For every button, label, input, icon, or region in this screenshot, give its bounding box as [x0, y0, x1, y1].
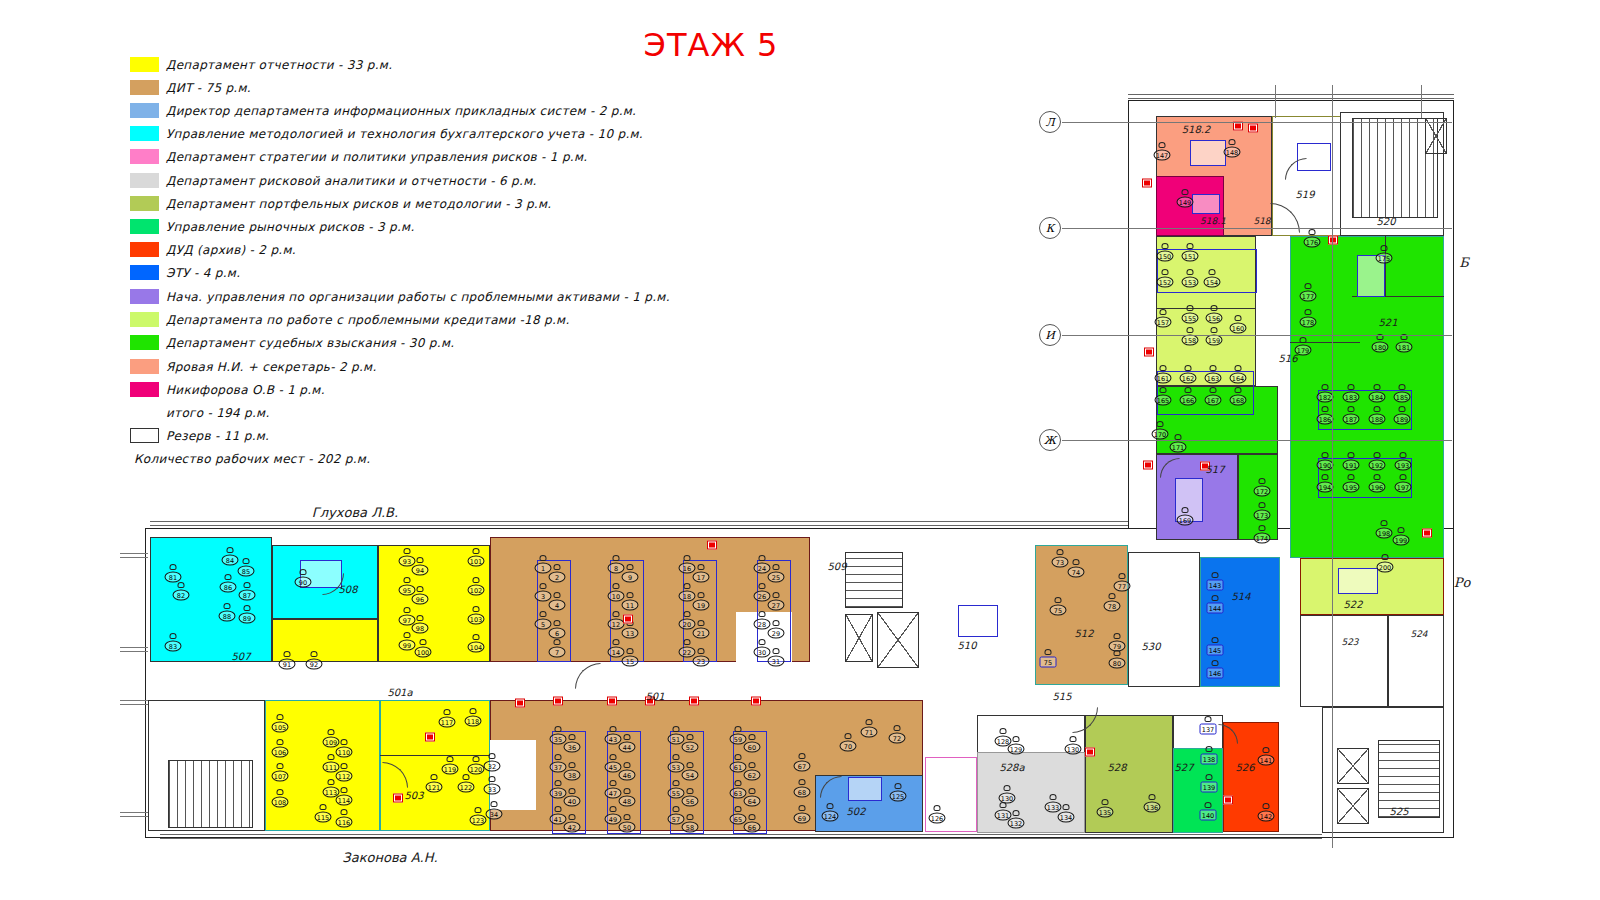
chair-icon — [687, 814, 694, 820]
chair-icon — [687, 734, 694, 740]
meeting-table-8 — [958, 605, 998, 637]
chair-icon — [555, 726, 562, 732]
desk-44: 44 — [619, 742, 636, 753]
chair-icon — [845, 733, 852, 739]
desk-28: 28 — [754, 619, 771, 630]
desk-190: 190 — [1317, 460, 1334, 471]
desk-10: 10 — [608, 591, 625, 602]
desk-61: 61 — [730, 762, 747, 773]
chair-icon — [735, 754, 742, 760]
desk-96: 96 — [412, 594, 429, 605]
desk-74: 74 — [1068, 567, 1085, 578]
chair-icon — [170, 564, 177, 570]
desk-133: 133 — [1045, 802, 1062, 813]
desk-105: 105 — [272, 722, 289, 733]
desk-59: 59 — [730, 734, 747, 745]
chair-icon — [866, 719, 873, 725]
chair-icon — [673, 726, 680, 732]
chair-icon — [1109, 593, 1116, 599]
desk-110: 110 — [336, 747, 353, 758]
fire-extinguisher-icon — [1328, 236, 1338, 245]
chair-icon — [1211, 305, 1218, 311]
grid-line-v-1 — [1275, 85, 1276, 118]
chair-icon — [417, 615, 424, 621]
window-strip-0 — [160, 834, 1322, 839]
chair-icon — [1000, 728, 1007, 734]
chair-icon — [827, 803, 834, 809]
chair-icon — [554, 564, 561, 570]
chair-icon — [1185, 365, 1192, 371]
chair-icon — [1398, 527, 1405, 533]
desk-142: 142 — [1258, 811, 1275, 822]
desk-147: 147 — [1154, 150, 1171, 161]
chair-icon — [341, 763, 348, 769]
chair-icon — [613, 639, 620, 645]
desk-39: 39 — [550, 788, 567, 799]
desk-71: 71 — [861, 727, 878, 738]
desk-94: 94 — [412, 565, 429, 576]
chair-icon — [1212, 637, 1219, 643]
desk-37: 37 — [550, 762, 567, 773]
chair-icon — [1157, 421, 1164, 427]
chair-icon — [540, 611, 547, 617]
floor-plan: 1471481491501511521531541571551561581591… — [0, 0, 1600, 900]
chair-icon — [1263, 803, 1270, 809]
plan-label-508: 508 — [338, 584, 357, 595]
desk-88: 88 — [219, 611, 236, 622]
plan-label--: Глухова Л.В. — [312, 505, 398, 520]
plan-label-507: 507 — [231, 651, 250, 662]
chair-icon — [569, 734, 576, 740]
chair-icon — [170, 633, 177, 639]
chair-icon — [417, 557, 424, 563]
plan-label-501: 501 — [645, 691, 664, 702]
chair-icon — [773, 648, 780, 654]
chair-icon — [894, 725, 901, 731]
desk-199: 199 — [1393, 535, 1410, 546]
axis-tick-1b — [120, 651, 148, 652]
desk-16: 16 — [679, 563, 696, 574]
desk-62: 62 — [744, 770, 761, 781]
chair-icon — [463, 774, 470, 780]
chair-icon — [320, 804, 327, 810]
desk-68: 68 — [794, 787, 811, 798]
desk-12: 12 — [608, 619, 625, 630]
desk-4: 4 — [549, 600, 566, 611]
chair-icon — [1210, 365, 1217, 371]
fire-extinguisher-icon — [393, 794, 403, 803]
desk-90: 90 — [295, 577, 312, 588]
chair-icon — [749, 788, 756, 794]
plan-label-528: 528 — [1107, 762, 1126, 773]
room-523 — [1300, 615, 1388, 707]
chair-icon — [1263, 747, 1270, 753]
desk-165: 165 — [1155, 395, 1172, 406]
desk-41: 41 — [550, 814, 567, 825]
meeting-table-7 — [1338, 568, 1378, 594]
chair-icon — [613, 583, 620, 589]
chair-icon — [1305, 283, 1312, 289]
chair-icon — [613, 555, 620, 561]
chair-icon — [277, 714, 284, 720]
chair-icon — [749, 734, 756, 740]
chair-icon — [624, 788, 631, 794]
chair-icon — [1205, 716, 1212, 722]
grid-line-v-2 — [1421, 85, 1422, 118]
plan-label-528-: 528а — [999, 762, 1024, 773]
chair-icon — [1305, 309, 1312, 315]
chair-icon — [569, 788, 576, 794]
desk-85: 85 — [238, 566, 255, 577]
desk-171: 171 — [1170, 442, 1187, 453]
chair-icon — [1400, 474, 1407, 480]
chair-icon — [473, 548, 480, 554]
desk-152: 152 — [1157, 277, 1174, 288]
desk-143: 143 — [1207, 580, 1224, 591]
chair-icon — [1057, 549, 1064, 555]
chair-icon — [1205, 802, 1212, 808]
chair-icon — [698, 592, 705, 598]
chair-icon — [277, 789, 284, 795]
chair-icon — [759, 555, 766, 561]
chair-icon — [684, 639, 691, 645]
chair-icon — [473, 577, 480, 583]
desk-125: 125 — [890, 791, 907, 802]
desk-29: 29 — [768, 628, 785, 639]
chair-icon — [540, 555, 547, 561]
chair-icon — [799, 779, 806, 785]
desk-43: 43 — [605, 734, 622, 745]
desk-92: 92 — [306, 659, 323, 670]
desk-155: 155 — [1182, 313, 1199, 324]
plan-label-510: 510 — [957, 640, 976, 651]
chair-icon — [610, 726, 617, 732]
desk-134: 134 — [1058, 812, 1075, 823]
desk-151: 151 — [1182, 251, 1199, 262]
axis-tick-2b — [120, 704, 148, 705]
desk-140: 140 — [1200, 810, 1217, 821]
axis-tick-3b — [120, 816, 148, 817]
desk-78: 78 — [1104, 601, 1121, 612]
chair-icon — [1160, 309, 1167, 315]
chair-icon — [1300, 337, 1307, 343]
chair-icon — [1055, 597, 1062, 603]
fire-extinguisher-icon — [515, 699, 525, 708]
desk-164: 164 — [1230, 373, 1247, 384]
chair-icon — [735, 806, 742, 812]
desk-31: 31 — [768, 656, 785, 667]
room-530 — [1128, 552, 1200, 687]
desk-21: 21 — [693, 628, 710, 639]
desk-38: 38 — [564, 770, 581, 781]
chair-icon — [773, 620, 780, 626]
grid-line-h-2 — [1062, 335, 1452, 336]
chair-icon — [555, 780, 562, 786]
chair-icon — [224, 603, 231, 609]
chair-icon — [473, 634, 480, 640]
plan-label-515: 515 — [1052, 691, 1071, 702]
chair-icon — [1322, 406, 1329, 412]
desk-49: 49 — [605, 814, 622, 825]
chair-icon — [1212, 595, 1219, 601]
chair-icon — [627, 592, 634, 598]
chair-icon — [244, 605, 251, 611]
chair-icon — [178, 582, 185, 588]
desk-141: 141 — [1258, 755, 1275, 766]
plan-label-526: 526 — [1235, 762, 1254, 773]
chair-icon — [1206, 746, 1213, 752]
chair-icon — [684, 611, 691, 617]
fire-extinguisher-icon — [689, 697, 699, 706]
desk-123: 123 — [470, 815, 487, 826]
desk-132: 132 — [1008, 818, 1025, 829]
chair-icon — [698, 620, 705, 626]
grid-line-h-1 — [1062, 228, 1452, 229]
desk-119: 119 — [442, 764, 459, 775]
desk-50: 50 — [619, 822, 636, 833]
desk-77: 77 — [1114, 581, 1131, 592]
chair-icon — [431, 774, 438, 780]
desk-192: 192 — [1369, 460, 1386, 471]
chair-icon — [1374, 474, 1381, 480]
chair-icon — [610, 754, 617, 760]
chair-icon — [1212, 572, 1219, 578]
desk-75: 75 — [1050, 605, 1067, 616]
desk-26: 26 — [754, 591, 771, 602]
stairs-1 — [1378, 740, 1440, 818]
axis-tick-0b — [120, 557, 148, 558]
fire-extinguisher-icon — [1248, 124, 1258, 133]
desk-65: 65 — [730, 814, 747, 825]
desk-17: 17 — [693, 572, 710, 583]
desk-135: 135 — [1097, 807, 1114, 818]
desk-121: 121 — [426, 782, 443, 793]
desk-72: 72 — [889, 733, 906, 744]
desk-138: 138 — [1201, 754, 1218, 765]
desk-181: 181 — [1396, 342, 1413, 353]
chair-icon — [444, 709, 451, 715]
plan-label-520: 520 — [1376, 216, 1395, 227]
desk-82: 82 — [173, 590, 190, 601]
fire-extinguisher-icon — [751, 697, 761, 706]
desk-70: 70 — [840, 741, 857, 752]
chair-icon — [1004, 785, 1011, 791]
grid-axis-И: И — [1039, 324, 1061, 346]
desk-196: 196 — [1369, 482, 1386, 493]
desk-116: 116 — [336, 817, 353, 828]
chair-icon — [1235, 387, 1242, 393]
chair-icon — [1162, 243, 1169, 249]
chair-icon — [1235, 315, 1242, 321]
desk-158: 158 — [1182, 335, 1199, 346]
chair-icon — [244, 582, 251, 588]
chair-icon — [328, 754, 335, 760]
desk-198: 198 — [1376, 528, 1393, 539]
desk-24: 24 — [754, 563, 771, 574]
plan-label-522: 522 — [1343, 599, 1362, 610]
room-reserve-zone-2 — [490, 740, 536, 810]
desk-13: 13 — [622, 628, 639, 639]
desk-33: 33 — [484, 784, 501, 795]
stairs-2 — [845, 552, 903, 608]
desk-126: 126 — [929, 813, 946, 824]
desk-15: 15 — [622, 656, 639, 667]
chair-icon — [613, 611, 620, 617]
partition-wall-0 — [1156, 308, 1256, 309]
stairs-3 — [168, 760, 253, 828]
desk-73: 73 — [1052, 557, 1069, 568]
desk-5: 5 — [535, 619, 552, 630]
desk-139: 139 — [1201, 782, 1218, 793]
chair-icon — [1149, 794, 1156, 800]
desk-148: 148 — [1224, 147, 1241, 158]
desk-168: 168 — [1230, 395, 1247, 406]
elevator-1 — [877, 612, 919, 668]
desk-48: 48 — [619, 796, 636, 807]
chair-icon — [328, 729, 335, 735]
chair-icon — [1119, 573, 1126, 579]
chair-icon — [554, 639, 561, 645]
chair-icon — [341, 809, 348, 815]
axis-tick-3 — [120, 812, 148, 813]
chair-icon — [1212, 660, 1219, 666]
axis-tick-1 — [120, 647, 148, 648]
plan-label-527: 527 — [1174, 762, 1193, 773]
desk-193: 193 — [1395, 460, 1412, 471]
meeting-table-5 — [848, 777, 882, 801]
chair-icon — [341, 787, 348, 793]
chair-icon — [277, 739, 284, 745]
desk-163: 163 — [1205, 373, 1222, 384]
chair-icon — [540, 583, 547, 589]
chair-icon — [1160, 365, 1167, 371]
desk-157: 157 — [1155, 317, 1172, 328]
desk-104: 104 — [468, 642, 485, 653]
desk-144: 144 — [1207, 603, 1224, 614]
chair-icon — [1000, 802, 1007, 808]
desk-118: 118 — [465, 716, 482, 727]
desk-93: 93 — [399, 556, 416, 567]
desk-60: 60 — [744, 742, 761, 753]
desk-14: 14 — [608, 647, 625, 658]
fire-extinguisher-icon — [707, 541, 717, 550]
desk-18: 18 — [679, 591, 696, 602]
chair-icon — [627, 564, 634, 570]
desk-47: 47 — [605, 788, 622, 799]
desk-112: 112 — [336, 771, 353, 782]
chair-icon — [447, 756, 454, 762]
chair-icon — [895, 783, 902, 789]
desk-69: 69 — [794, 813, 811, 824]
plan-label-503: 503 — [404, 790, 423, 801]
desk-122: 122 — [458, 782, 475, 793]
desk-186: 186 — [1317, 414, 1334, 425]
chair-icon — [404, 607, 411, 613]
plan-label-501-: 501а — [387, 687, 412, 698]
chair-icon — [673, 754, 680, 760]
chair-icon — [277, 763, 284, 769]
chair-icon — [684, 583, 691, 589]
plan-label-521: 521 — [1378, 317, 1397, 328]
desk-160: 160 — [1230, 323, 1247, 334]
chair-icon — [1187, 305, 1194, 311]
plan-label-530: 530 — [1141, 641, 1160, 652]
elevator-3 — [1337, 788, 1369, 824]
chair-icon — [1187, 243, 1194, 249]
desk-115: 115 — [315, 812, 332, 823]
chair-icon — [1210, 387, 1217, 393]
desk-137: 137 — [1200, 724, 1217, 735]
chair-icon — [243, 558, 250, 564]
chair-icon — [735, 780, 742, 786]
chair-icon — [1013, 810, 1020, 816]
desk-161: 161 — [1155, 373, 1172, 384]
chair-icon — [1259, 502, 1266, 508]
desk-80: 80 — [1109, 658, 1126, 669]
desk-120: 120 — [468, 764, 485, 775]
chair-icon — [1187, 269, 1194, 275]
plan-label-525: 525 — [1389, 806, 1408, 817]
chair-icon — [1348, 474, 1355, 480]
plan-label-514: 514 — [1231, 591, 1250, 602]
chair-icon — [698, 564, 705, 570]
desk-188: 188 — [1369, 414, 1386, 425]
window-strip-3 — [1128, 94, 1454, 99]
fire-extinguisher-icon — [1085, 748, 1095, 757]
plan-label-512: 512 — [1074, 628, 1093, 639]
desk-185: 185 — [1394, 392, 1411, 403]
chair-icon — [749, 762, 756, 768]
desk-83: 83 — [165, 641, 182, 652]
chair-icon — [1348, 384, 1355, 390]
desk-124: 124 — [822, 811, 839, 822]
plan-label-502: 502 — [846, 806, 865, 817]
desk-35: 35 — [550, 734, 567, 745]
chair-icon — [1185, 387, 1192, 393]
chair-icon — [698, 648, 705, 654]
grid-line-h-3 — [1062, 440, 1452, 441]
desk-184: 184 — [1369, 392, 1386, 403]
desk-22: 22 — [679, 647, 696, 658]
desk-51: 51 — [668, 734, 685, 745]
chair-icon — [489, 776, 496, 782]
chair-icon — [489, 753, 496, 759]
desk-162: 162 — [1180, 373, 1197, 384]
desk-117: 117 — [439, 717, 456, 728]
chair-icon — [799, 805, 806, 811]
grid-line-h-0 — [1062, 122, 1452, 123]
chair-icon — [404, 577, 411, 583]
desk-149: 149 — [1177, 197, 1194, 208]
chair-icon — [1070, 736, 1077, 742]
chair-icon — [328, 779, 335, 785]
desk-98: 98 — [412, 623, 429, 634]
axis-tick-0 — [120, 553, 148, 554]
desk-34: 34 — [486, 809, 503, 820]
chair-icon — [673, 780, 680, 786]
chair-icon — [1013, 736, 1020, 742]
chair-icon — [1322, 474, 1329, 480]
plan-label-524: 524 — [1410, 629, 1427, 639]
chair-icon — [1374, 384, 1381, 390]
desk-19: 19 — [693, 600, 710, 611]
elevator-0 — [845, 614, 873, 662]
desk-107: 107 — [272, 771, 289, 782]
desk-129: 129 — [1008, 744, 1025, 755]
chair-icon — [475, 807, 482, 813]
desk-136: 136 — [1144, 802, 1161, 813]
chair-icon — [1399, 406, 1406, 412]
